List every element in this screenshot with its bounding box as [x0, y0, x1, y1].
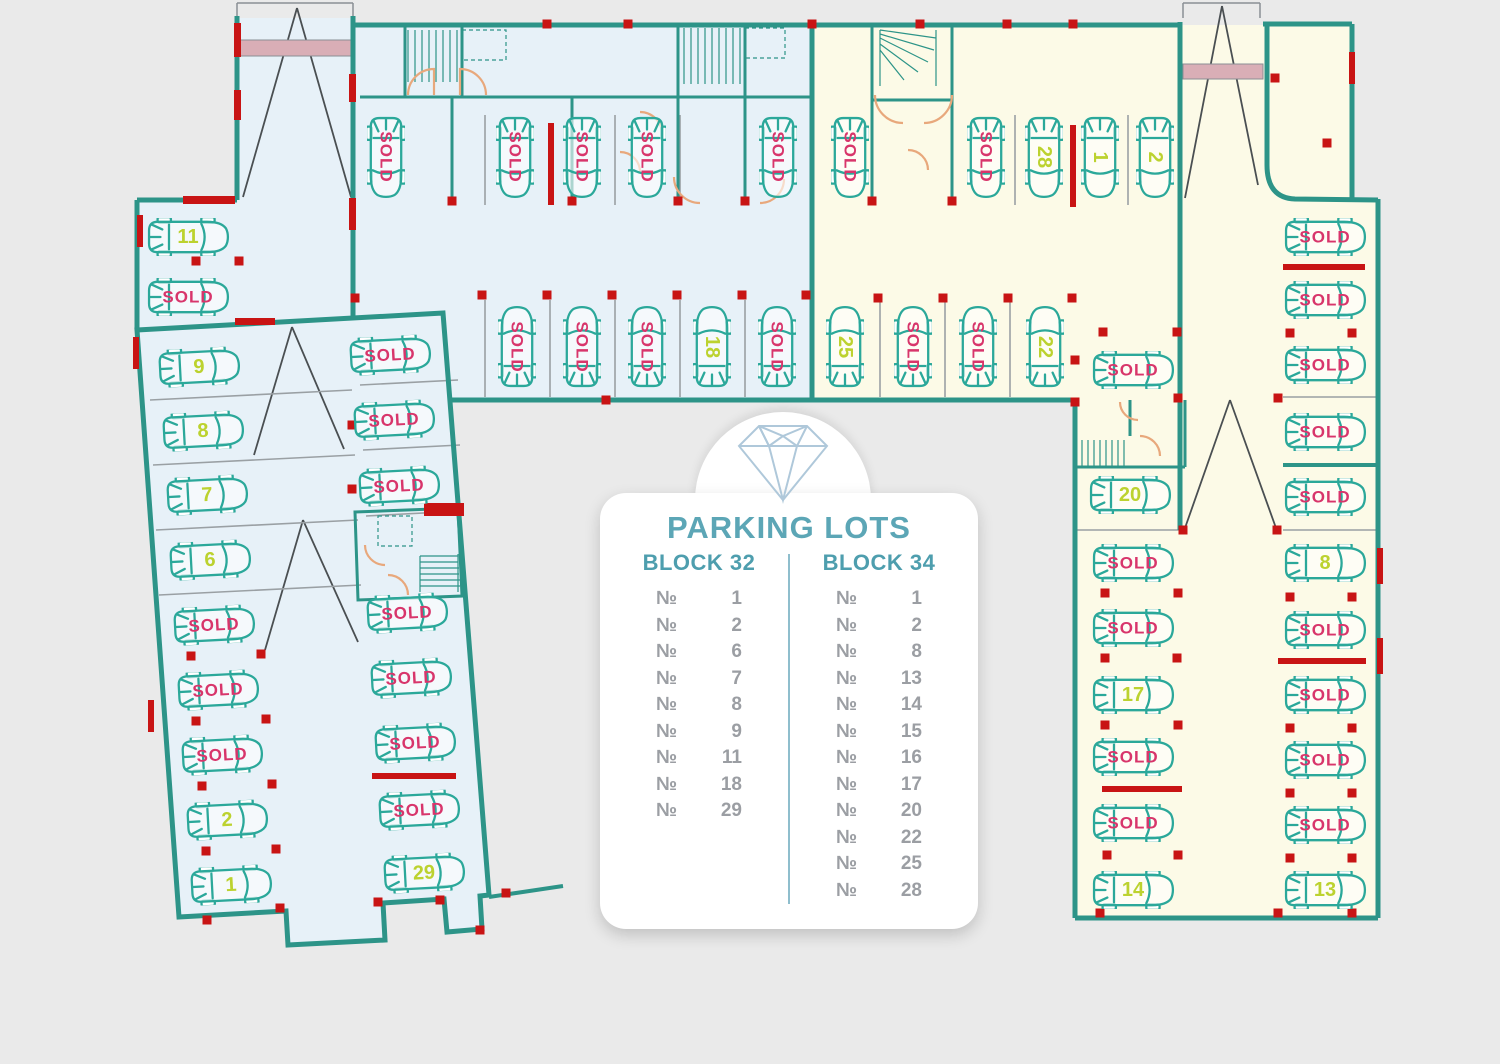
- svg-text:22: 22: [1034, 336, 1056, 358]
- parking-spot-sold: SOLD: [1094, 543, 1173, 583]
- parking-spot-available: 22: [1025, 307, 1065, 386]
- svg-text:SOLD: SOLD: [364, 344, 416, 366]
- parking-spot-sold: SOLD: [627, 118, 667, 197]
- svg-text:SOLD: SOLD: [841, 131, 860, 182]
- parking-spot-sold: SOLD: [1286, 477, 1365, 517]
- block-34-column: BLOCK 34 №1№2№8№13№14№15№16№17№20№22№25№…: [790, 550, 968, 904]
- svg-text:6: 6: [204, 549, 216, 572]
- svg-text:17: 17: [1122, 684, 1144, 706]
- lot-number-item: №6: [656, 639, 742, 666]
- parking-spot-sold: SOLD: [966, 118, 1006, 197]
- parking-spot-sold: SOLD: [1286, 675, 1365, 715]
- svg-text:SOLD: SOLD: [1107, 619, 1158, 638]
- lot-number-item: №8: [656, 692, 742, 719]
- lot-number-item: №22: [836, 825, 922, 852]
- svg-text:SOLD: SOLD: [1299, 356, 1350, 375]
- parking-spot-available: 2: [1135, 118, 1175, 197]
- parking-spot-sold: SOLD: [1094, 608, 1173, 648]
- parking-spot-available: 25: [825, 307, 865, 386]
- ramp-outlines: [237, 3, 1260, 18]
- svg-text:20: 20: [1119, 484, 1141, 506]
- parking-lots-panel: PARKING LOTS BLOCK 32 №1№2№6№7№8№9№11№18…: [600, 412, 978, 934]
- panel-columns: BLOCK 32 №1№2№6№7№8№9№11№18№29 BLOCK 34 …: [610, 550, 968, 904]
- parking-spot-sold: SOLD: [1094, 350, 1173, 390]
- svg-text:SOLD: SOLD: [196, 744, 248, 766]
- svg-text:SOLD: SOLD: [1299, 423, 1350, 442]
- lot-number-item: №13: [836, 666, 922, 693]
- svg-text:SOLD: SOLD: [377, 131, 396, 182]
- lot-number-item: №18: [656, 772, 742, 799]
- block-34-list: №1№2№8№13№14№15№16№17№20№22№25№28: [790, 586, 968, 904]
- svg-text:SOLD: SOLD: [638, 131, 657, 182]
- lot-number-item: №2: [836, 613, 922, 640]
- lot-number-item: №2: [656, 613, 742, 640]
- svg-text:8: 8: [1319, 552, 1330, 574]
- svg-text:2: 2: [1144, 151, 1166, 162]
- svg-text:SOLD: SOLD: [506, 131, 525, 182]
- svg-text:13: 13: [1314, 879, 1336, 901]
- svg-text:9: 9: [193, 356, 205, 379]
- parking-spot-sold: SOLD: [958, 307, 998, 386]
- svg-text:28: 28: [1033, 146, 1055, 168]
- block-32-list: №1№2№6№7№8№9№11№18№29: [610, 586, 788, 825]
- parking-spot-available: 18: [692, 307, 732, 386]
- svg-text:SOLD: SOLD: [1299, 621, 1350, 640]
- parking-spot-sold: SOLD: [1094, 803, 1173, 843]
- svg-text:SOLD: SOLD: [162, 288, 213, 307]
- svg-text:14: 14: [1122, 879, 1145, 901]
- svg-text:SOLD: SOLD: [904, 321, 923, 372]
- svg-text:SOLD: SOLD: [385, 667, 437, 689]
- svg-text:SOLD: SOLD: [1299, 228, 1350, 247]
- svg-text:SOLD: SOLD: [1107, 748, 1158, 767]
- parking-spot-sold: SOLD: [830, 118, 870, 197]
- svg-text:1: 1: [1089, 151, 1111, 162]
- parking-floor-plan-page: 11SOLD9876SOLDSOLDSOLD21SOLDSOLDSOLDSOLD…: [0, 0, 1500, 1064]
- parking-spot-available: 11: [149, 217, 228, 257]
- svg-text:SOLD: SOLD: [368, 409, 420, 431]
- lot-number-item: №16: [836, 745, 922, 772]
- lot-number-item: №14: [836, 692, 922, 719]
- parking-spot-sold: SOLD: [1286, 345, 1365, 385]
- block-34-header: BLOCK 34: [790, 550, 968, 576]
- lot-number-item: №9: [656, 719, 742, 746]
- parking-spot-available: 28: [1024, 118, 1064, 197]
- svg-text:SOLD: SOLD: [1107, 361, 1158, 380]
- parking-spot-sold: SOLD: [758, 118, 798, 197]
- svg-text:SOLD: SOLD: [508, 321, 527, 372]
- parking-spot-sold: SOLD: [1094, 737, 1173, 777]
- svg-text:29: 29: [412, 861, 435, 884]
- parking-spot-sold: SOLD: [1286, 217, 1365, 257]
- svg-text:SOLD: SOLD: [1299, 751, 1350, 770]
- svg-text:2: 2: [221, 809, 233, 832]
- svg-text:SOLD: SOLD: [381, 602, 433, 624]
- lot-number-item: №7: [656, 666, 742, 693]
- svg-text:SOLD: SOLD: [1107, 814, 1158, 833]
- parking-spot-available: 14: [1094, 870, 1173, 910]
- svg-text:SOLD: SOLD: [389, 732, 441, 754]
- svg-text:SOLD: SOLD: [1299, 686, 1350, 705]
- panel-title: PARKING LOTS: [600, 510, 978, 546]
- svg-text:SOLD: SOLD: [573, 321, 592, 372]
- svg-text:18: 18: [701, 336, 723, 358]
- parking-spot-sold: SOLD: [1286, 805, 1365, 845]
- svg-text:8: 8: [197, 420, 209, 443]
- parking-spot-sold: SOLD: [497, 307, 537, 386]
- parking-spot-available: 8: [1286, 543, 1365, 583]
- parking-spot-sold: SOLD: [757, 307, 797, 386]
- svg-text:SOLD: SOLD: [393, 799, 445, 821]
- svg-text:SOLD: SOLD: [1107, 554, 1158, 573]
- parking-spot-available: 20: [1091, 475, 1170, 515]
- parking-spot-available: 1: [1080, 118, 1120, 197]
- lot-number-item: №17: [836, 772, 922, 799]
- parking-spot-sold: SOLD: [627, 307, 667, 386]
- parking-spot-sold: SOLD: [149, 277, 228, 317]
- svg-text:SOLD: SOLD: [977, 131, 996, 182]
- lot-number-item: №1: [656, 586, 742, 613]
- parking-spot-sold: SOLD: [366, 118, 406, 197]
- svg-text:SOLD: SOLD: [1299, 291, 1350, 310]
- parking-spot-sold: SOLD: [562, 307, 602, 386]
- lot-number-item: №29: [656, 798, 742, 825]
- svg-text:25: 25: [834, 336, 856, 358]
- svg-text:SOLD: SOLD: [769, 131, 788, 182]
- svg-text:1: 1: [225, 874, 237, 897]
- svg-text:SOLD: SOLD: [573, 131, 592, 182]
- svg-text:11: 11: [177, 226, 198, 248]
- parking-spot-sold: SOLD: [893, 307, 933, 386]
- diamond-icon: [737, 420, 829, 504]
- svg-text:SOLD: SOLD: [969, 321, 988, 372]
- lot-number-item: №28: [836, 878, 922, 905]
- block-32-header: BLOCK 32: [610, 550, 788, 576]
- lot-number-item: №25: [836, 851, 922, 878]
- lot-number-item: №11: [656, 745, 742, 772]
- lot-number-item: №20: [836, 798, 922, 825]
- svg-text:SOLD: SOLD: [1299, 816, 1350, 835]
- lot-number-item: №15: [836, 719, 922, 746]
- parking-spot-sold: SOLD: [562, 118, 602, 197]
- lot-number-item: №8: [836, 639, 922, 666]
- svg-text:SOLD: SOLD: [373, 475, 425, 497]
- svg-text:SOLD: SOLD: [638, 321, 657, 372]
- svg-text:SOLD: SOLD: [1299, 488, 1350, 507]
- parking-spot-available: 13: [1286, 870, 1365, 910]
- parking-spot-sold: SOLD: [1286, 412, 1365, 452]
- svg-text:SOLD: SOLD: [188, 614, 240, 636]
- block-32-column: BLOCK 32 №1№2№6№7№8№9№11№18№29: [610, 550, 788, 904]
- parking-spot-sold: SOLD: [1286, 610, 1365, 650]
- parking-spot-sold: SOLD: [1286, 740, 1365, 780]
- svg-text:SOLD: SOLD: [192, 679, 244, 701]
- parking-spot-sold: SOLD: [1286, 280, 1365, 320]
- parking-spot-sold: SOLD: [495, 118, 535, 197]
- lot-number-item: №1: [836, 586, 922, 613]
- parking-spot-available: 17: [1094, 675, 1173, 715]
- svg-text:SOLD: SOLD: [768, 321, 787, 372]
- svg-text:7: 7: [201, 484, 213, 507]
